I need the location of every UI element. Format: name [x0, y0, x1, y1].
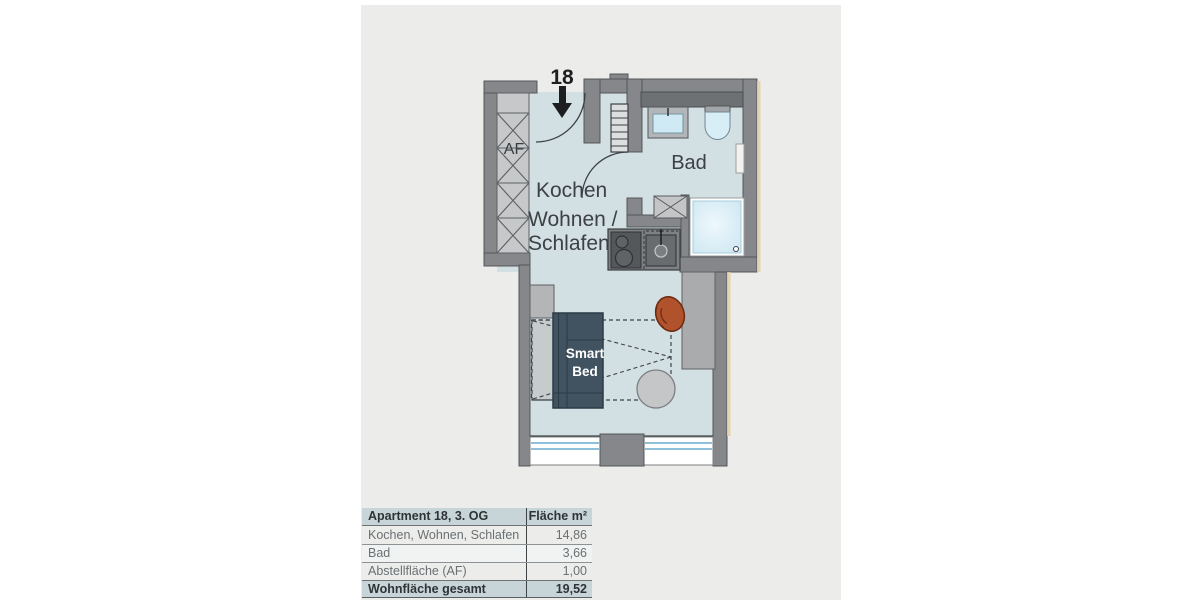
wall-top-left — [484, 81, 537, 93]
floor-plan: Smart Bed 18 AF Bad Kochen Wohnen / Schl… — [0, 0, 1200, 600]
bath-sink — [648, 107, 688, 138]
row-label: Bad — [362, 545, 526, 562]
bed-label-line2: Bed — [572, 364, 598, 379]
row-label: Abstellfläche (AF) — [362, 563, 526, 580]
round-table — [637, 370, 675, 408]
wall-top-right — [584, 79, 757, 93]
window-pier — [600, 434, 644, 466]
row-label: Kochen, Wohnen, Schlafen — [362, 526, 526, 544]
table-row: Kochen, Wohnen, Schlafen 14,86 — [362, 526, 592, 544]
wardrobe — [682, 272, 715, 369]
storage-label: AF — [504, 141, 525, 158]
total-value: 19,52 — [526, 581, 592, 597]
wall-right-bath — [743, 79, 757, 272]
wall-entry-stub — [584, 79, 600, 143]
area-table-header: Apartment 18, 3. OG Fläche m² — [362, 508, 592, 526]
shaft-duct — [654, 196, 687, 218]
windows — [530, 434, 713, 466]
table-title: Apartment 18, 3. OG — [362, 508, 526, 525]
bed-fold-zone — [532, 320, 554, 400]
room-label-line2: Wohnen / — [528, 208, 618, 231]
bed-label-line1: Smart — [566, 346, 605, 361]
table-row: Abstellfläche (AF) 1,00 — [362, 562, 592, 580]
window-right — [644, 437, 713, 465]
window-left — [530, 437, 600, 465]
wall-below-shower — [680, 257, 757, 272]
wall-left-upper — [484, 81, 497, 266]
toilet — [705, 106, 730, 140]
burner-small — [616, 236, 628, 248]
kitchenette — [608, 229, 680, 270]
bath-counter — [641, 92, 743, 107]
row-value: 1,00 — [526, 563, 592, 580]
storage-shelf — [497, 93, 529, 253]
radiator — [611, 104, 628, 152]
wall-bath-left — [627, 79, 642, 152]
area-table: Apartment 18, 3. OG Fläche m² Kochen, Wo… — [362, 508, 592, 598]
total-label: Wohnfläche gesamt — [362, 581, 526, 597]
burner-large — [616, 250, 633, 267]
shower — [690, 198, 744, 256]
table-total-row: Wohnfläche gesamt 19,52 — [362, 580, 592, 598]
table-area-column-header: Fläche m² — [526, 508, 592, 525]
wall-niche — [736, 144, 744, 173]
table-row: Bad 3,66 — [362, 544, 592, 562]
row-value: 3,66 — [526, 545, 592, 562]
smart-bed: Smart Bed — [553, 313, 605, 408]
row-value: 14,86 — [526, 526, 592, 544]
room-label-line3: Schlafen — [528, 232, 610, 255]
wall-left-horizontal — [484, 253, 530, 266]
bath-label: Bad — [671, 152, 707, 174]
wall-left-lower — [519, 265, 530, 466]
apartment-number-label: 18 — [550, 66, 574, 89]
side-cabinet — [530, 285, 554, 318]
shower-drain — [734, 247, 739, 252]
room-label-line1: Kochen — [536, 179, 607, 202]
